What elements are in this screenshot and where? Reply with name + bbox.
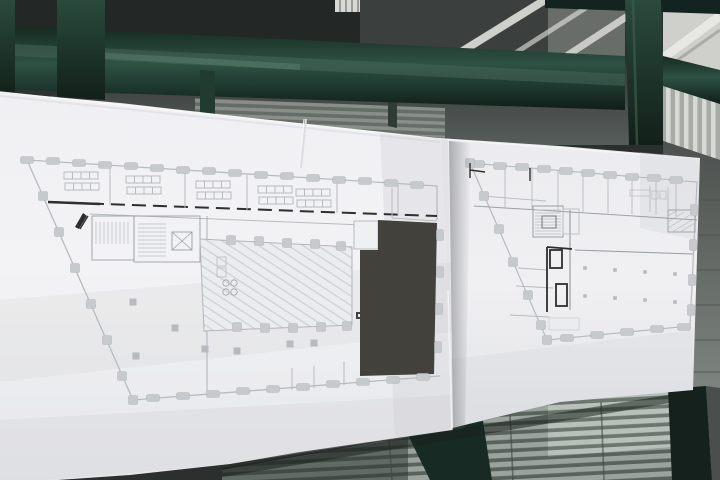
photo-floor-plans-on-partition — [0, 0, 720, 480]
main-vertical-mullion — [625, 0, 666, 145]
mullion-upper-left — [57, 0, 105, 100]
right-sheet — [438, 138, 700, 430]
left-plan-dark-block — [354, 220, 437, 376]
frame-left-edge — [0, 0, 15, 98]
small-mullion-center — [200, 70, 215, 114]
